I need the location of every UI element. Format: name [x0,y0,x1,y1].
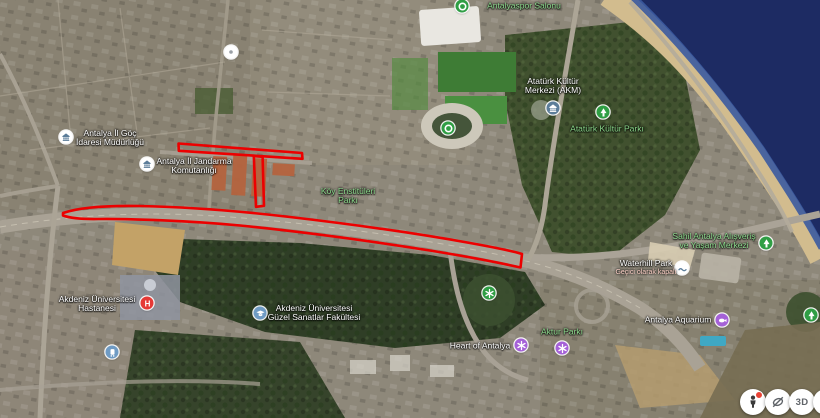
svg-text:H: H [144,299,150,308]
poi-label-sahil-antalya-avm[interactable]: Sahil Antalya Alışveriş ve Yaşam Merkezi [672,232,755,250]
map-viewport[interactable]: H Antalya İl Göç İdaresi Müdürlüğü Antal… [0,0,820,418]
graduation-cap-icon [255,308,265,318]
ferris-wheel-icon [484,288,494,298]
poi-label-line: Merkezi (AKM) [525,86,581,95]
dot-icon [227,48,236,57]
poi-label-line: Heart of Antalya [450,342,510,351]
tree-icon [598,107,608,117]
3d-button-label: 3D [796,397,809,408]
tram-icon [107,347,117,357]
park-poi-icon[interactable] [597,106,610,119]
university-poi-icon[interactable] [254,307,267,320]
bank-building-icon [62,133,71,142]
poi-label-line: Waterhill Park [615,259,676,268]
generic-poi-icon[interactable] [225,46,238,59]
3d-view-button[interactable]: 3D [789,389,815,415]
poi-label-line: Atatürk Kültür Parkı [570,125,644,134]
poi-label-heart-of-antalya[interactable]: Heart of Antalya [450,342,510,351]
poi-label-line: ve Yaşam Merkezi [672,241,755,250]
fish-icon [717,315,727,325]
poi-label-guzel-sanatlar[interactable]: Akdeniz Üniversitesi Güzel Sanatlar Fakü… [268,304,361,322]
poi-label-antalyaspor-salonu[interactable]: Antalyaspor Salonu [487,2,561,11]
attraction-poi-icon[interactable] [556,342,569,355]
aquarium-poi-icon[interactable] [716,314,729,327]
poi-label-line: Parkı [321,196,375,205]
arena-ring-icon [443,123,453,133]
stadium-poi-icon[interactable] [442,122,455,135]
poi-label-line: İdaresi Müdürlüğü [76,138,144,147]
poi-label-line: Aktur Parkı [541,328,583,337]
park-poi-icon[interactable] [760,237,773,250]
notification-dot [755,391,763,399]
arena-ring-icon [457,1,467,11]
ferris-wheel-icon [516,340,526,350]
tree-icon [806,310,816,320]
satellite-map-canvas[interactable] [0,0,820,418]
attraction-poi-icon[interactable] [515,339,528,352]
poi-label-line: Komutanlığı [156,166,231,175]
poi-label-line: Antalyaspor Salonu [487,2,561,11]
park-poi-icon[interactable] [805,309,818,322]
poi-label-koy-enstituleri-parki[interactable]: Köy Enstitüleri Parkı [321,187,375,205]
poi-label-ataturk-kultur-parki[interactable]: Atatürk Kültür Parkı [570,125,644,134]
amusement-poi-icon[interactable] [483,287,496,300]
poi-label-jandarma[interactable]: Antalya İl Jandarma Komutanlığı [156,157,231,175]
government-poi-icon[interactable] [141,158,154,171]
poi-label-line: Antalya Aquarium [645,316,712,325]
transit-station-poi-icon[interactable] [106,346,119,359]
reset-tilt-button[interactable] [765,389,791,415]
poi-status-temporarily-closed: Geçici olarak kapalı [615,268,676,277]
poi-label-akdeniz-hastanesi[interactable]: Akdeniz Üniversitesi Hastanesi [59,295,136,313]
government-poi-icon[interactable] [60,131,73,144]
waterpark-poi-icon[interactable] [676,262,689,275]
tree-icon [761,238,771,248]
poi-label-line: Hastanesi [59,304,136,313]
bank-building-icon [143,160,152,169]
wave-icon [677,263,687,273]
poi-label-line: Güzel Sanatlar Fakültesi [268,313,361,322]
ferris-wheel-icon [557,343,567,353]
street-view-pegman-button[interactable] [740,389,766,415]
hospital-poi-icon[interactable]: H [141,297,154,310]
poi-label-aktur-parki[interactable]: Aktur Parkı [541,328,583,337]
tilt-disabled-icon [771,395,785,409]
culture-center-poi-icon[interactable] [547,102,560,115]
poi-label-waterhill-park[interactable]: Waterhill Park Geçici olarak kapalı [615,259,676,277]
museum-building-icon [549,104,558,113]
hospital-h-icon: H [142,298,152,308]
poi-label-goc-idaresi[interactable]: Antalya İl Göç İdaresi Müdürlüğü [76,129,144,147]
poi-label-akm[interactable]: Atatürk Kültür Merkezi (AKM) [525,77,581,95]
sports-hall-poi-icon[interactable] [456,0,469,13]
poi-label-antalya-aquarium[interactable]: Antalya Aquarium [645,316,712,325]
